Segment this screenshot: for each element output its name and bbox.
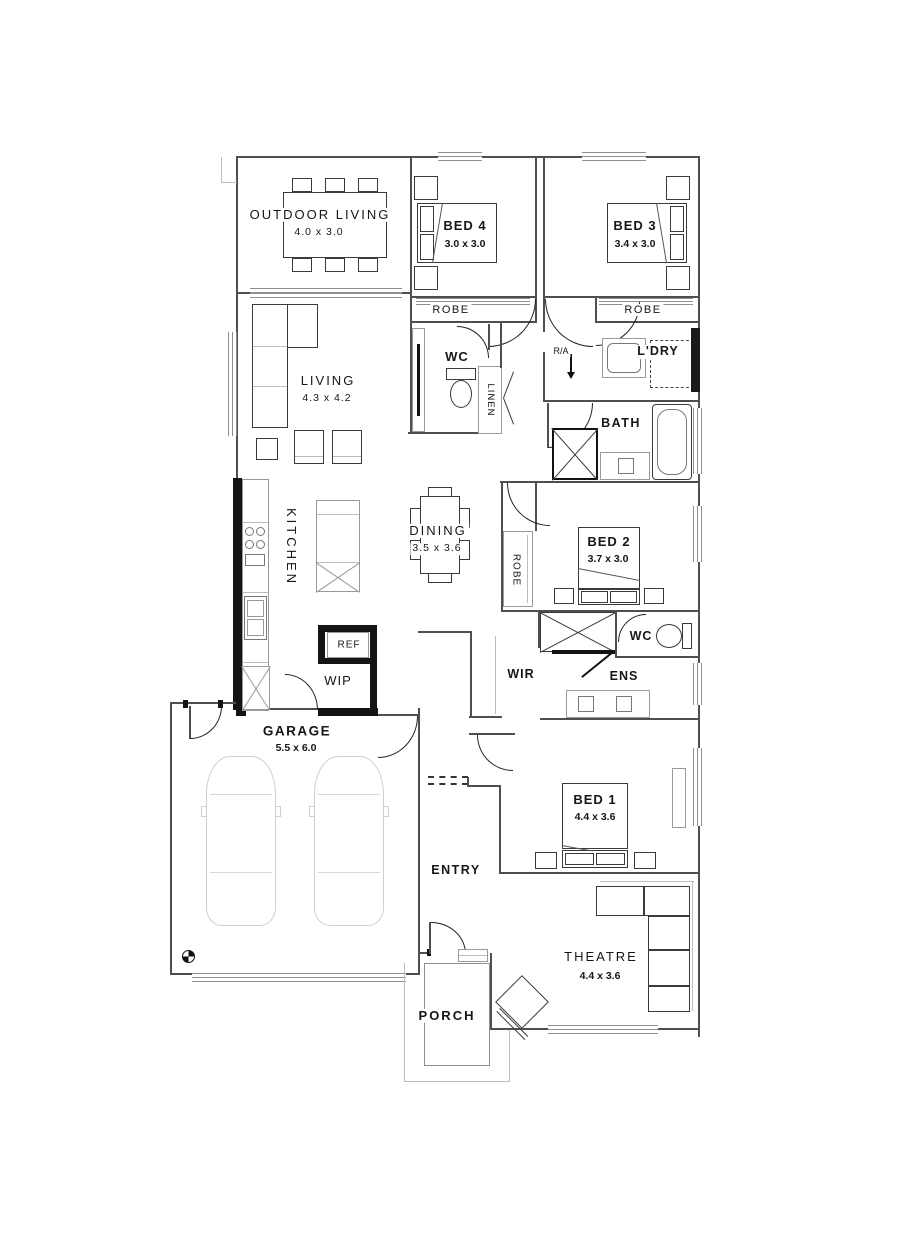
theatre-sofa-seat-2 xyxy=(648,916,690,950)
living-sofa-div2 xyxy=(253,386,287,387)
bed2-side-table-right xyxy=(644,588,664,604)
living-ottoman-2-line xyxy=(333,456,361,457)
living-sofa-back xyxy=(252,304,288,428)
kitchen-sink-bowl-1 xyxy=(247,600,264,617)
wall-theatre-left xyxy=(490,953,492,1030)
garage-door-panel xyxy=(192,973,406,982)
theatre-sofa-seat-3 xyxy=(648,950,690,986)
wall-wip-right xyxy=(370,625,377,716)
wall-garage-top-link xyxy=(170,702,238,704)
wall-hall-bottom xyxy=(418,631,472,633)
room-label-fridge: REF xyxy=(336,640,363,651)
wall-bath-top xyxy=(543,400,700,402)
window-bath xyxy=(693,408,702,474)
dining-chair-top xyxy=(428,487,452,497)
bed4-side-table-top xyxy=(414,176,438,200)
room-dims-dining: 3.5 x 3.6 xyxy=(410,543,463,555)
bed4-door-arc xyxy=(488,299,536,347)
dining-chair-bottom xyxy=(428,573,452,583)
porch-outer-step-bottom xyxy=(404,1081,510,1082)
room-label-theatre: THEATRE xyxy=(562,950,640,964)
window-bed3 xyxy=(582,152,646,161)
wall-ldry-jamb xyxy=(543,322,545,332)
outdoor-chair-1 xyxy=(292,178,312,192)
garage-section-marker xyxy=(182,950,195,963)
kitchen-bench-div-3 xyxy=(243,662,268,663)
kitchen-island-line-top xyxy=(317,514,359,515)
outdoor-chair-3 xyxy=(358,178,378,192)
bathtub-inner xyxy=(657,409,687,475)
wc2-toilet-cistern xyxy=(682,623,692,649)
car-outline-left xyxy=(206,756,276,926)
wall-garage-top-thick-right xyxy=(318,708,378,716)
room-label-ens: ENS xyxy=(608,670,641,684)
room-label-bath: BATH xyxy=(599,417,643,431)
corridor-door-arc xyxy=(477,735,513,771)
theatre-sofa-seat-1 xyxy=(596,886,644,916)
wall-garage-left xyxy=(170,702,172,975)
car-left-windshield xyxy=(210,794,272,795)
wall-wc-right xyxy=(488,324,490,350)
wall-kitchen-feature xyxy=(233,478,242,710)
slab-notch-left-h xyxy=(221,182,237,183)
wall-exterior-right xyxy=(698,156,700,1037)
room-label-entry: ENTRY xyxy=(429,864,482,878)
ens-vanity-basin-1 xyxy=(578,696,594,712)
wall-garage-right xyxy=(418,708,420,975)
room-label-living: LIVING xyxy=(299,374,358,388)
room-label-bed2: BED 2 xyxy=(585,535,632,549)
car-left-mirror-l xyxy=(201,806,207,817)
bed2-door-arc xyxy=(507,483,550,526)
room-label-laundry: L'DRY xyxy=(635,345,681,359)
wall-wc2-left xyxy=(615,612,617,658)
room-dims-garage: 5.5 x 6.0 xyxy=(274,743,319,755)
bed3-side-table-top xyxy=(666,176,690,200)
room-label-porch: PORCH xyxy=(417,1009,478,1023)
bed1-side-table-left xyxy=(535,852,557,869)
room-label-linen: LINEN xyxy=(483,384,497,417)
room-label-wip: WIP xyxy=(322,674,354,688)
living-ottoman-1-line xyxy=(295,456,323,457)
living-ottoman-2 xyxy=(332,430,362,464)
room-label-bed3: BED 3 xyxy=(611,219,658,233)
return-air-arrow-head xyxy=(567,372,575,379)
window-living xyxy=(228,332,237,436)
window-outdoor-living-sliding-door xyxy=(250,288,402,298)
outdoor-chair-5 xyxy=(325,258,345,272)
wall-bed1-bottom xyxy=(499,872,698,874)
room-dims-bed4: 3.0 x 3.0 xyxy=(443,239,488,251)
bed1-drawer-2 xyxy=(596,853,625,865)
ens-vanity-basin-2 xyxy=(616,696,632,712)
living-sofa-div1 xyxy=(253,346,287,347)
room-dims-bed2: 3.7 x 3.0 xyxy=(586,554,631,566)
wall-hall-linen xyxy=(500,322,502,368)
window-theatre xyxy=(548,1025,658,1034)
room-label-wc-hall: WC xyxy=(443,350,471,364)
room-dims-theatre: 4.4 x 3.6 xyxy=(578,971,623,983)
side-door-jamb-left xyxy=(183,700,188,708)
outdoor-chair-2 xyxy=(325,178,345,192)
outdoor-chair-6 xyxy=(358,258,378,272)
cooktop-burner-4 xyxy=(256,540,265,549)
wall-wc2-bottom xyxy=(615,656,700,658)
bed4-side-table-bottom xyxy=(414,266,438,290)
living-tv-screen xyxy=(417,344,420,416)
linen-bifold-door-upper xyxy=(503,372,514,398)
wall-entry-right xyxy=(499,785,501,874)
room-label-robe-bed2: ROBE xyxy=(509,554,524,586)
bed4-pillow-2 xyxy=(420,234,434,260)
wc2-toilet-bowl xyxy=(656,624,682,648)
bed1-drawer-1 xyxy=(565,853,594,865)
theatre-chair xyxy=(495,975,549,1029)
car-outline-right xyxy=(314,756,384,926)
kitchen-bench-div-2 xyxy=(243,592,268,593)
window-laundry xyxy=(691,328,700,392)
robe-bed2-mirror-line xyxy=(527,535,528,603)
linen-bifold-door-lower xyxy=(503,398,514,424)
kitchen-sink-bowl-2 xyxy=(247,619,264,636)
room-label-bed4: BED 4 xyxy=(441,219,488,233)
room-label-dining: DINING xyxy=(407,524,469,538)
wc-toilet-cistern xyxy=(446,368,476,380)
living-ottoman-1 xyxy=(294,430,324,464)
wall-ref-left xyxy=(318,625,325,662)
garage-entry-door-leaf xyxy=(378,714,418,716)
bed3-side-table-bottom xyxy=(666,266,690,290)
garage-entry-door-arc xyxy=(378,716,418,758)
wall-wir-left xyxy=(470,633,472,718)
car-right-mirror-r xyxy=(383,806,389,817)
room-dims-living: 4.3 x 4.2 xyxy=(300,393,353,405)
window-ens xyxy=(693,663,702,705)
bed2-drawer-1 xyxy=(581,591,608,603)
window-bed4 xyxy=(438,152,482,161)
wall-ref-bottom xyxy=(318,658,376,664)
wall-ra-left xyxy=(543,352,545,402)
bath-vanity-basin xyxy=(618,458,634,474)
cooktop-burner-1 xyxy=(245,527,254,536)
room-label-return-air: R/A xyxy=(551,347,570,357)
porch-outer-step-right xyxy=(509,1030,510,1082)
entry-dashed-line-2 xyxy=(428,783,468,785)
bed2-side-table-left xyxy=(554,588,574,604)
car-right-mirror-l xyxy=(309,806,315,817)
kitchen-bench-div-1 xyxy=(243,522,268,523)
wc-toilet-bowl xyxy=(450,380,472,408)
theatre-sofa-back-line-h xyxy=(600,881,694,882)
room-label-bed1: BED 1 xyxy=(571,793,618,807)
wir-shelf-line xyxy=(495,636,496,714)
theatre-sofa-corner xyxy=(644,886,690,916)
room-label-robe-bed3: ROBE xyxy=(622,304,663,316)
outdoor-chair-4 xyxy=(292,258,312,272)
room-dims-bed3: 3.4 x 3.0 xyxy=(613,239,658,251)
room-label-robe-bed4: ROBE xyxy=(430,304,471,316)
room-label-wc-ens: WC xyxy=(628,630,655,644)
wall-ens-bottom xyxy=(540,718,700,720)
bed3-door-arc xyxy=(545,299,593,347)
window-bed2 xyxy=(693,506,702,562)
cooktop-oven xyxy=(245,554,265,566)
room-label-outdoor-living: OUTDOOR LIVING xyxy=(248,208,393,222)
room-label-kitchen: KITCHEN xyxy=(282,508,300,586)
bed2-drawer-2 xyxy=(610,591,637,603)
room-dims-outdoor-living: 4.0 x 3.0 xyxy=(292,227,345,239)
side-door-arc xyxy=(190,706,222,739)
living-side-table xyxy=(256,438,278,460)
bed1-side-table-right xyxy=(634,852,656,869)
window-bed1 xyxy=(693,748,702,826)
car-right-rear-window xyxy=(318,872,380,873)
wall-wir-bottom-cap xyxy=(469,716,502,718)
entry-sidelight-line xyxy=(459,955,487,956)
outdoor-table xyxy=(283,192,387,258)
room-label-wir: WIR xyxy=(505,668,536,682)
theatre-sofa-seat-4 xyxy=(648,986,690,1012)
wip-door-arc xyxy=(285,674,318,710)
car-left-rear-window xyxy=(210,872,272,873)
car-left-mirror-r xyxy=(275,806,281,817)
bath-door-leaf xyxy=(547,403,549,448)
entry-dashed-line-1 xyxy=(428,776,468,778)
cooktop-burner-2 xyxy=(256,527,265,536)
theatre-sofa-back-line-v xyxy=(692,881,693,1011)
bed1-tv-cabinet xyxy=(672,768,686,828)
slab-notch-left-v xyxy=(221,157,222,183)
wall-ref-top xyxy=(318,625,376,632)
bed3-pillow-1 xyxy=(670,206,684,232)
porch-outer-step-left xyxy=(404,963,405,1082)
room-label-garage: GARAGE xyxy=(261,725,333,740)
car-right-windshield xyxy=(318,794,380,795)
wall-bed3-bottom xyxy=(543,296,599,298)
cooktop-burner-3 xyxy=(245,540,254,549)
ens-door-head xyxy=(552,650,616,654)
floor-plan-canvas: OUTDOOR LIVING 4.0 x 3.0 BED 4 3.0 x 3.0… xyxy=(0,0,901,1245)
bed4-pillow-1 xyxy=(420,206,434,232)
kitchen-island-line-bottom xyxy=(317,562,359,563)
bed3-pillow-2 xyxy=(670,234,684,260)
wall-entry-step-h xyxy=(467,785,501,787)
room-dims-bed1: 4.4 x 3.6 xyxy=(573,812,618,824)
